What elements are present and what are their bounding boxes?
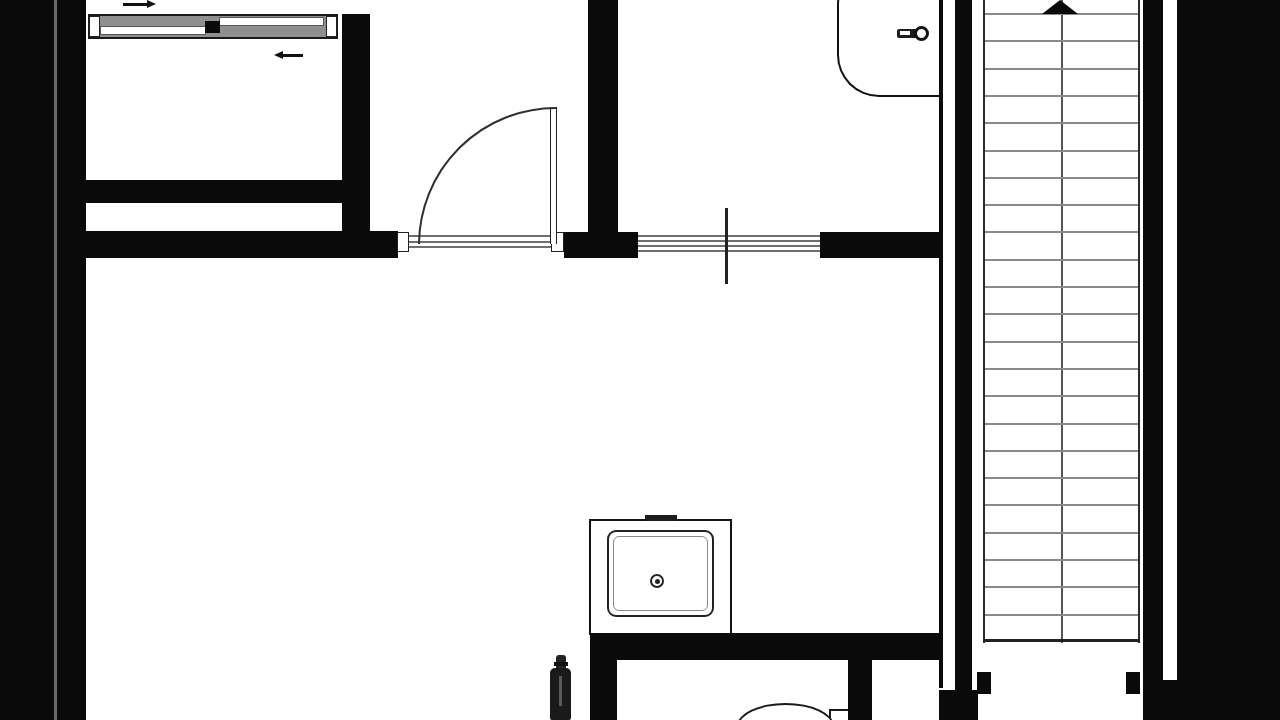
stair-bottom-edge: [983, 639, 1140, 642]
stair-foot-block-left: [939, 690, 978, 720]
stair-tread-line: [985, 450, 1138, 452]
window-line: [638, 250, 820, 252]
slide-arrow-left-shaft: [283, 54, 303, 57]
stair-tread-line: [985, 231, 1138, 233]
stair-tread-line: [985, 68, 1138, 70]
slide-arrow-right-icon: [147, 0, 156, 8]
hall-bathroom-divider-wall: [588, 0, 618, 234]
stair-tread-line: [985, 423, 1138, 425]
left-wall-seam-line: [54, 0, 57, 720]
bottle-lip: [554, 662, 568, 666]
kitchen-counter-tab: [645, 515, 677, 521]
stair-tread-line: [985, 559, 1138, 561]
stair-tread-line: [985, 259, 1138, 261]
staircase: [983, 0, 1140, 643]
window-line: [638, 240, 820, 242]
stair-foot-cap-left: [977, 672, 991, 694]
t-junction-wall: [564, 232, 638, 258]
faucet-slot: [900, 31, 910, 35]
slide-arrow-left-icon: [274, 51, 283, 59]
stair-tread-line: [985, 368, 1138, 370]
right-wall-white-strip: [1163, 0, 1177, 680]
sliding-door-panel-left: [100, 26, 206, 35]
window-line: [638, 245, 820, 247]
kitchen-sink-drain-dot: [655, 579, 660, 584]
stair-tread-line: [985, 204, 1138, 206]
bottle-highlight: [559, 676, 562, 706]
stair-foot-cap-right: [1126, 672, 1140, 694]
toilet-cistern: [829, 709, 850, 720]
door-sill-line: [409, 235, 552, 237]
kitchen-sink-basin-inner: [613, 536, 708, 611]
sliding-door-end-cap: [326, 16, 337, 37]
stair-tread-line: [985, 341, 1138, 343]
stair-tread-line: [985, 177, 1138, 179]
window-tick-mark: [725, 208, 728, 284]
stair-tread-line: [985, 40, 1138, 42]
door-leaf: [550, 107, 557, 244]
stair-tread-line: [985, 122, 1138, 124]
sliding-door-overlap-mark: [205, 21, 220, 33]
stair-shaft-left-bar: [955, 0, 972, 692]
faucet-knob: [914, 26, 929, 41]
door-sill-line: [409, 246, 552, 248]
stair-tread-line: [985, 586, 1138, 588]
kitchen-left-vertical-wall: [590, 633, 617, 720]
slide-arrow-right-shaft: [123, 3, 147, 6]
upper-left-room-lower-wall: [57, 180, 343, 203]
stair-tread-line: [985, 532, 1138, 534]
door-sill-line: [409, 241, 552, 243]
stair-tread-line: [985, 313, 1138, 315]
floor-plan-canvas: [0, 0, 1280, 720]
outer-wall-left-mass: [0, 0, 86, 720]
stair-tread-line: [985, 150, 1138, 152]
up-arrow-icon: [1042, 0, 1078, 14]
stair-tread-line: [985, 504, 1138, 506]
stair-tread-line: [985, 614, 1138, 616]
sliding-door-end-cap: [89, 16, 100, 37]
upper-left-room-right-wall: [342, 14, 370, 258]
window-line: [638, 235, 820, 237]
toilet-bowl: [737, 703, 834, 720]
sliding-door-panel-right: [219, 17, 324, 26]
stair-tread-line: [985, 95, 1138, 97]
stair-shaft-thin-wall: [939, 0, 943, 688]
stair-tread-line: [985, 286, 1138, 288]
toilet-room-right-wall: [848, 660, 872, 720]
horizontal-wall-right-of-window: [820, 232, 941, 258]
kitchen-horizontal-wall: [590, 633, 941, 660]
stair-tread-line: [985, 477, 1138, 479]
stair-tread-line: [985, 395, 1138, 397]
door-stop-block: [397, 232, 409, 252]
washbasin: [837, 0, 941, 97]
